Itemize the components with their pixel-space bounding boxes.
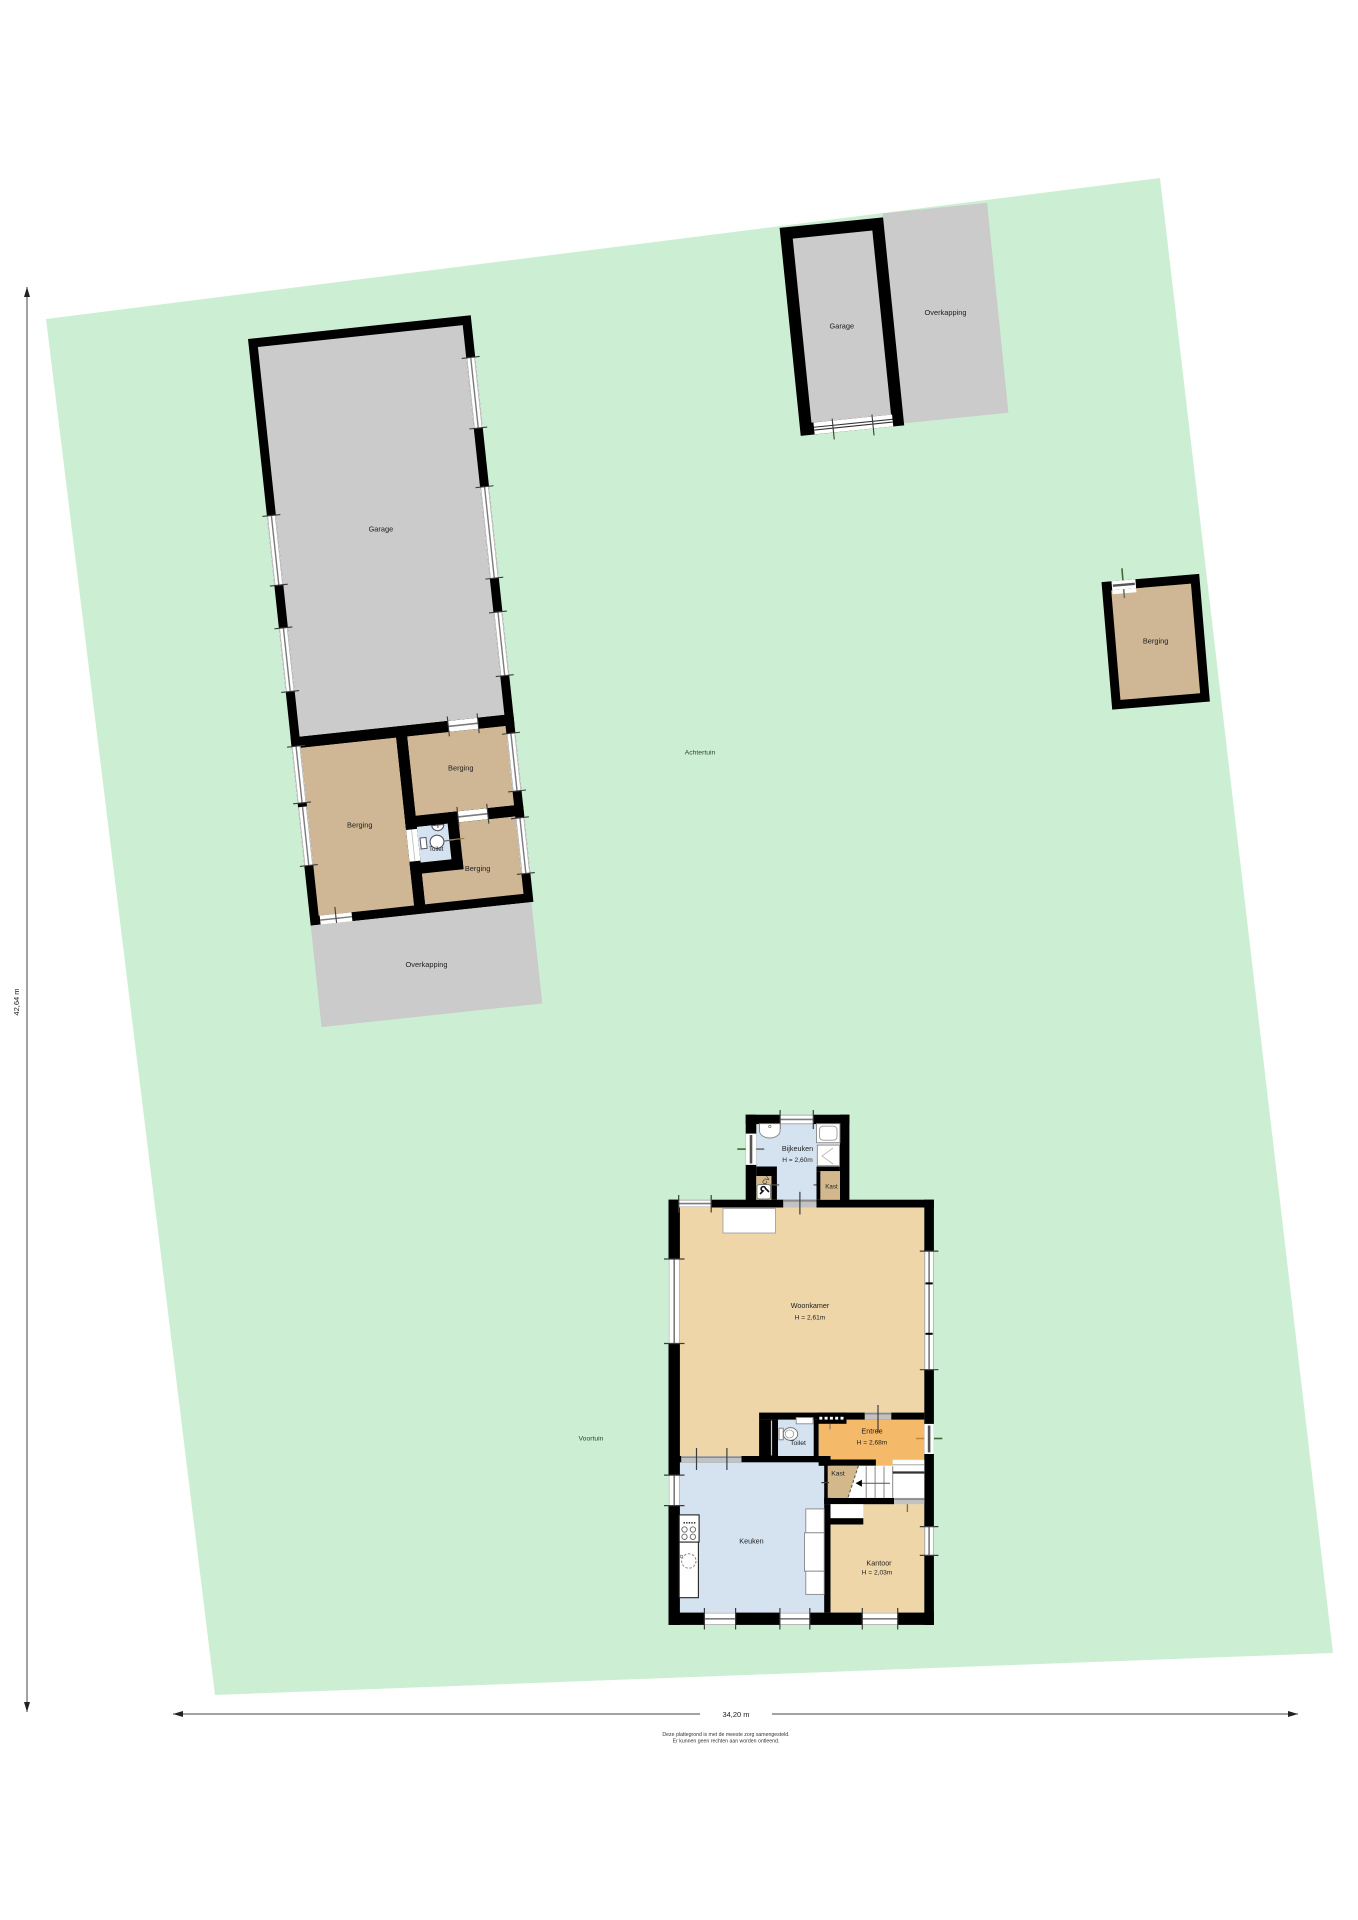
svg-text:Keuken: Keuken [739, 1537, 763, 1546]
svg-text:Toilet: Toilet [429, 846, 444, 853]
svg-text:Berging: Berging [1143, 636, 1168, 645]
svg-text:Achtertuin: Achtertuin [685, 750, 716, 757]
svg-text:Deze plattegrond is met de mee: Deze plattegrond is met de meeste zorg s… [662, 1732, 789, 1738]
svg-text:42,64 m: 42,64 m [12, 988, 21, 1015]
svg-text:H = 2,60m: H = 2,60m [782, 1157, 813, 1164]
svg-text:Overkapping: Overkapping [406, 960, 448, 969]
svg-text:Berging: Berging [465, 864, 490, 873]
svg-text:34,20 m: 34,20 m [722, 1710, 749, 1719]
svg-text:Er kunnen geen rechten aan wor: Er kunnen geen rechten aan worden ontlee… [673, 1739, 780, 1745]
svg-text:Kast: Kast [825, 1184, 838, 1191]
svg-text:Kantoor: Kantoor [866, 1559, 892, 1568]
svg-text:Toilet: Toilet [790, 1440, 806, 1447]
svg-text:Overkapping: Overkapping [925, 308, 967, 317]
svg-text:Bijkeuken: Bijkeuken [782, 1144, 813, 1153]
svg-text:Voortuin: Voortuin [579, 1436, 604, 1443]
svg-text:Kast: Kast [831, 1471, 845, 1478]
svg-text:Berging: Berging [448, 763, 473, 772]
svg-text:H = 2,03m: H = 2,03m [862, 1570, 893, 1577]
svg-text:H = 2,68m: H = 2,68m [857, 1440, 888, 1447]
svg-text:Garage: Garage [829, 322, 854, 331]
svg-text:Entree: Entree [861, 1427, 882, 1436]
svg-text:Garage: Garage [369, 525, 394, 534]
svg-text:Berging: Berging [347, 821, 372, 830]
svg-text:H = 2,61m: H = 2,61m [795, 1315, 826, 1322]
svg-text:Woonkamer: Woonkamer [791, 1301, 830, 1310]
